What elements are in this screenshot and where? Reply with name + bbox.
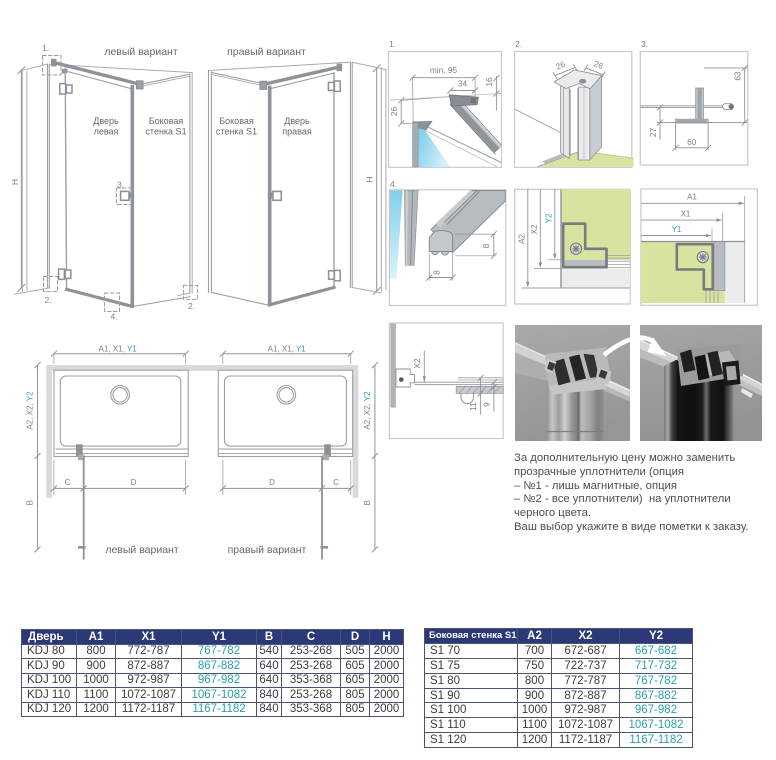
svg-text:A1, X1, Y1: A1, X1, Y1 (99, 345, 138, 354)
svg-text:D: D (131, 478, 137, 487)
svg-text:3.: 3. (641, 39, 648, 49)
svg-text:60: 60 (687, 137, 697, 147)
svg-text:H: H (364, 176, 374, 182)
svg-text:A2, X2, Y2: A2, X2, Y2 (26, 391, 35, 430)
svg-text:Дверь: Дверь (93, 116, 119, 126)
svg-text:8: 8 (431, 270, 441, 275)
svg-text:2.: 2. (188, 301, 195, 311)
svg-text:11: 11 (468, 402, 478, 411)
svg-text:26: 26 (389, 107, 399, 117)
svg-text:63: 63 (732, 71, 742, 81)
svg-text:2.: 2. (515, 39, 522, 49)
svg-text:16: 16 (484, 77, 494, 87)
svg-text:B: B (363, 500, 372, 505)
svg-text:левый вариант: левый вариант (104, 46, 178, 58)
svg-text:Боковая: Боковая (219, 116, 254, 126)
svg-text:27: 27 (648, 128, 658, 138)
svg-text:9: 9 (482, 402, 492, 407)
svg-text:X2: X2 (412, 358, 422, 369)
svg-text:A2, X2, Y2: A2, X2, Y2 (363, 391, 372, 430)
svg-text:правый вариант: правый вариант (228, 544, 307, 556)
svg-text:2.: 2. (45, 295, 52, 305)
svg-text:правый вариант: правый вариант (227, 46, 306, 58)
svg-text:8: 8 (481, 243, 491, 248)
svg-text:Дверь: Дверь (284, 116, 310, 126)
svg-text:B: B (26, 500, 35, 505)
svg-text:левая: левая (94, 127, 119, 137)
svg-text:A2: A2 (517, 234, 526, 244)
svg-text:X1: X1 (681, 209, 691, 218)
svg-text:стенка S1: стенка S1 (216, 127, 257, 137)
svg-text:34: 34 (458, 79, 468, 89)
svg-text:левый вариант: левый вариант (105, 544, 179, 556)
svg-text:min. 95: min. 95 (430, 65, 458, 75)
svg-text:1.: 1. (42, 43, 49, 53)
svg-text:C: C (65, 478, 71, 487)
svg-text:A1, X1, Y1: A1, X1, Y1 (268, 345, 307, 354)
svg-text:H: H (10, 179, 20, 185)
svg-text:C: C (333, 478, 339, 487)
svg-text:правая: правая (282, 127, 312, 137)
svg-text:Боковая: Боковая (149, 116, 184, 126)
svg-text:X2: X2 (530, 224, 539, 234)
svg-text:1.: 1. (389, 39, 396, 49)
svg-text:A1: A1 (687, 193, 697, 202)
svg-text:Y1: Y1 (672, 225, 682, 234)
svg-text:Y2: Y2 (544, 213, 553, 223)
svg-text:D: D (269, 478, 275, 487)
svg-text:4.: 4. (390, 179, 397, 189)
svg-text:4.: 4. (111, 312, 118, 322)
svg-text:стенка S1: стенка S1 (145, 127, 186, 137)
